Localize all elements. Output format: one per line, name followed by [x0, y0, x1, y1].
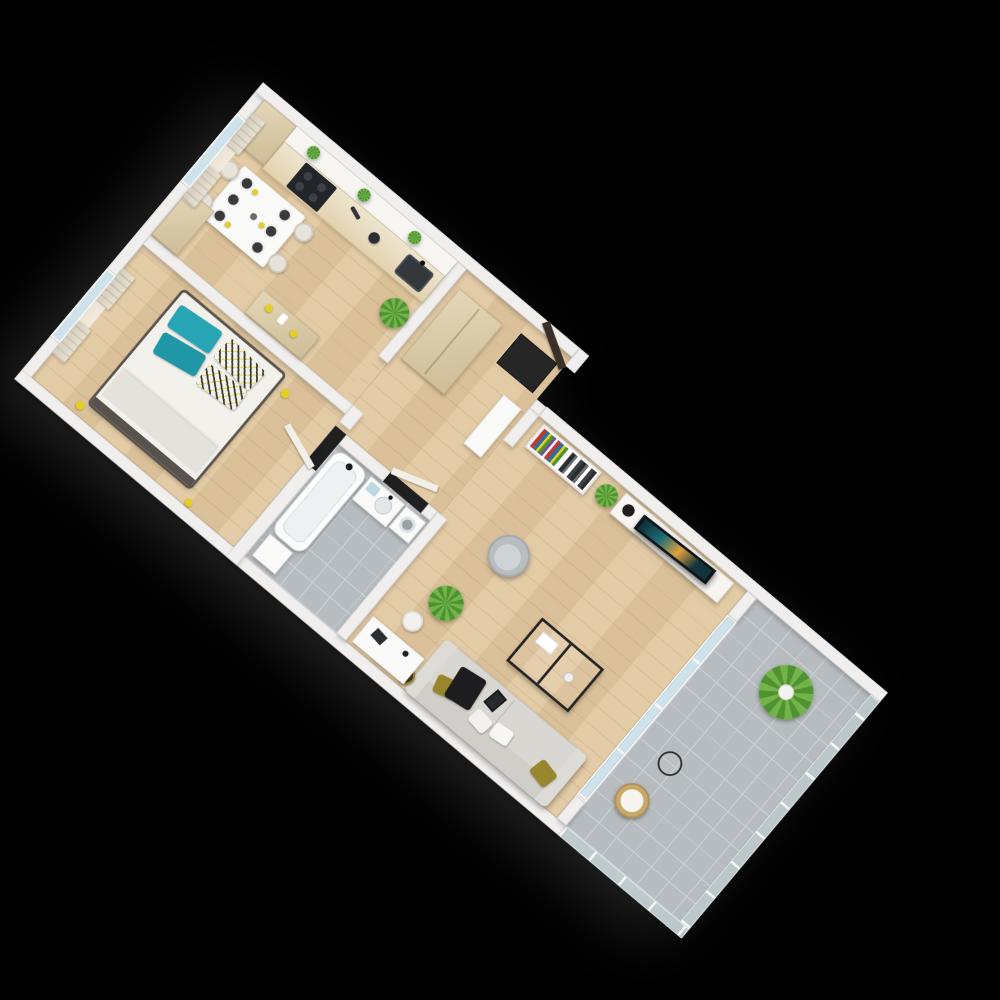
burner-3 — [293, 180, 305, 192]
towels-lightblue — [365, 481, 381, 497]
laptop — [370, 628, 387, 646]
burner-1 — [302, 170, 314, 182]
scene-background — [0, 0, 1000, 1000]
burner-2 — [315, 181, 327, 193]
floor-plan — [3, 82, 937, 958]
coffee-table-decor-white — [534, 631, 559, 655]
desk-lamp — [401, 649, 410, 658]
coffee-table-decor-round — [561, 670, 576, 685]
rattan-chair-cushion — [616, 785, 648, 817]
washer-drum — [396, 514, 418, 536]
armchair-cushion — [489, 539, 526, 576]
burner-4 — [307, 191, 319, 203]
